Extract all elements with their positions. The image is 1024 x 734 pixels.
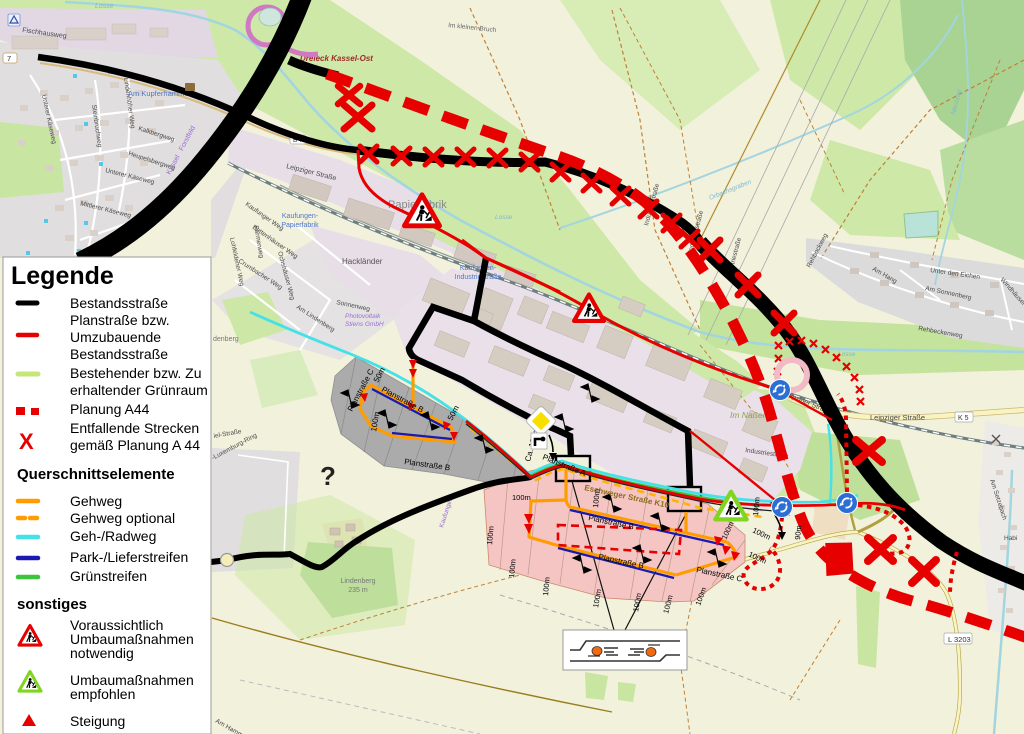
svg-text:Bestehender bzw. Zu: Bestehender bzw. Zu	[70, 365, 202, 381]
svg-text:sonstiges: sonstiges	[17, 596, 87, 613]
svg-text:Im Naßen: Im Naßen	[730, 410, 768, 420]
svg-text:7: 7	[7, 54, 11, 63]
svg-text:Hackländer: Hackländer	[342, 257, 383, 266]
svg-text:Planung A44: Planung A44	[70, 401, 150, 417]
svg-text:denberg: denberg	[213, 336, 239, 343]
svg-text:Querschnittselemente: Querschnittselemente	[17, 466, 175, 483]
svg-text:Umzubauende: Umzubauende	[70, 329, 161, 345]
svg-text:Losse: Losse	[495, 214, 513, 221]
svg-text:100m: 100m	[591, 489, 602, 508]
svg-text:Planstraße bzw.: Planstraße bzw.	[70, 312, 170, 328]
svg-text:100m: 100m	[507, 559, 518, 578]
svg-text:Losse: Losse	[838, 351, 856, 358]
svg-text:90m: 90m	[793, 525, 803, 540]
svg-text:Losse: Losse	[95, 3, 114, 10]
svg-text:X: X	[19, 429, 34, 454]
svg-text:Grünstreifen: Grünstreifen	[70, 568, 147, 584]
svg-text:?: ?	[320, 461, 336, 491]
svg-text:100m: 100m	[541, 577, 552, 596]
svg-text:100m: 100m	[751, 497, 762, 516]
svg-text:235 m: 235 m	[348, 587, 368, 594]
svg-text:100m: 100m	[485, 526, 496, 545]
svg-text:notwendig: notwendig	[70, 645, 134, 661]
svg-text:Leipziger Straße: Leipziger Straße	[870, 413, 925, 422]
svg-text:Park-/Lieferstreifen: Park-/Lieferstreifen	[70, 549, 188, 565]
svg-text:Legende: Legende	[11, 262, 114, 290]
svg-text:Kaufungen-: Kaufungen-	[460, 265, 497, 272]
svg-text:L 3203: L 3203	[948, 635, 971, 644]
svg-text:Kaufungen-: Kaufungen-	[282, 213, 319, 220]
svg-text:Entfallende Strecken: Entfallende Strecken	[70, 420, 199, 436]
svg-text:Stiens GmbH: Stiens GmbH	[345, 321, 384, 328]
svg-text:erhaltender Grünraum: erhaltender Grünraum	[70, 382, 208, 398]
svg-text:Bestandsstraße: Bestandsstraße	[70, 346, 168, 362]
svg-text:empfohlen: empfohlen	[70, 686, 135, 702]
svg-text:Lindenberg: Lindenberg	[340, 578, 375, 585]
svg-text:gemäß Planung A 44: gemäß Planung A 44	[70, 437, 200, 453]
svg-text:Gehweg optional: Gehweg optional	[70, 510, 175, 526]
svg-text:Habi: Habi	[1004, 535, 1017, 542]
svg-text:K 5: K 5	[958, 415, 969, 422]
svg-text:Geh-/Radweg: Geh-/Radweg	[70, 528, 156, 544]
svg-text:Gehweg: Gehweg	[70, 493, 122, 509]
svg-text:100m: 100m	[512, 493, 531, 502]
svg-text:Steigung: Steigung	[70, 713, 125, 729]
svg-text:Photovoltaik: Photovoltaik	[345, 313, 381, 320]
svg-text:Bestandsstraße: Bestandsstraße	[70, 295, 168, 311]
svg-text:Papierfabrik: Papierfabrik	[281, 222, 319, 229]
svg-text:Industriestraße: Industriestraße	[455, 274, 502, 281]
